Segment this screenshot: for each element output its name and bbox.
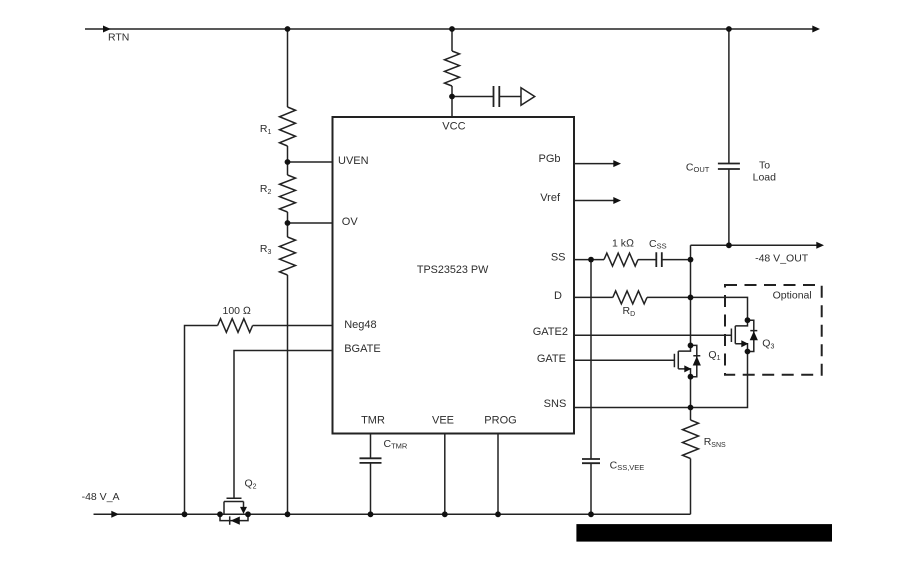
svg-text:1 kΩ: 1 kΩ — [612, 237, 634, 249]
svg-text:RSNS: RSNS — [704, 436, 726, 449]
svg-text:CTMR: CTMR — [384, 438, 408, 451]
svg-text:TMR: TMR — [361, 415, 385, 427]
svg-text:GATE: GATE — [537, 353, 566, 365]
svg-text:Q1: Q1 — [708, 349, 720, 362]
svg-text:PGb: PGb — [538, 153, 560, 165]
svg-text:Q2: Q2 — [245, 478, 257, 491]
svg-text:RD: RD — [623, 305, 636, 318]
svg-text:OV: OV — [342, 216, 359, 228]
svg-text:R1: R1 — [260, 123, 272, 136]
svg-text:Load: Load — [753, 171, 777, 183]
svg-text:100 Ω: 100 Ω — [223, 305, 252, 317]
svg-text:COUT: COUT — [686, 162, 710, 175]
svg-text:TPS23523 PW: TPS23523 PW — [417, 264, 489, 276]
svg-text:UVEN: UVEN — [338, 155, 369, 167]
svg-text:R3: R3 — [260, 243, 272, 256]
svg-text:Q3: Q3 — [762, 338, 774, 351]
svg-text:SNS: SNS — [544, 398, 567, 410]
svg-text:BGATE: BGATE — [344, 343, 380, 355]
svg-text:CSS,VEE: CSS,VEE — [610, 460, 645, 473]
svg-text:Vref: Vref — [540, 192, 561, 204]
svg-text:D: D — [554, 290, 562, 302]
svg-text:To: To — [759, 160, 770, 172]
svg-text:Optional: Optional — [773, 290, 812, 302]
svg-text:Neg48: Neg48 — [344, 319, 376, 331]
svg-text:-48 V_OUT: -48 V_OUT — [755, 253, 809, 265]
svg-text:VEE: VEE — [432, 415, 454, 427]
svg-text:SS: SS — [551, 251, 566, 263]
svg-text:PROG: PROG — [484, 415, 516, 427]
svg-text:RTN: RTN — [108, 32, 129, 44]
svg-text:GATE2: GATE2 — [533, 326, 568, 338]
svg-text:CSS: CSS — [649, 238, 667, 251]
svg-text:R2: R2 — [260, 183, 272, 196]
svg-text:-48 V_A: -48 V_A — [82, 491, 120, 503]
svg-text:VCC: VCC — [442, 120, 465, 132]
